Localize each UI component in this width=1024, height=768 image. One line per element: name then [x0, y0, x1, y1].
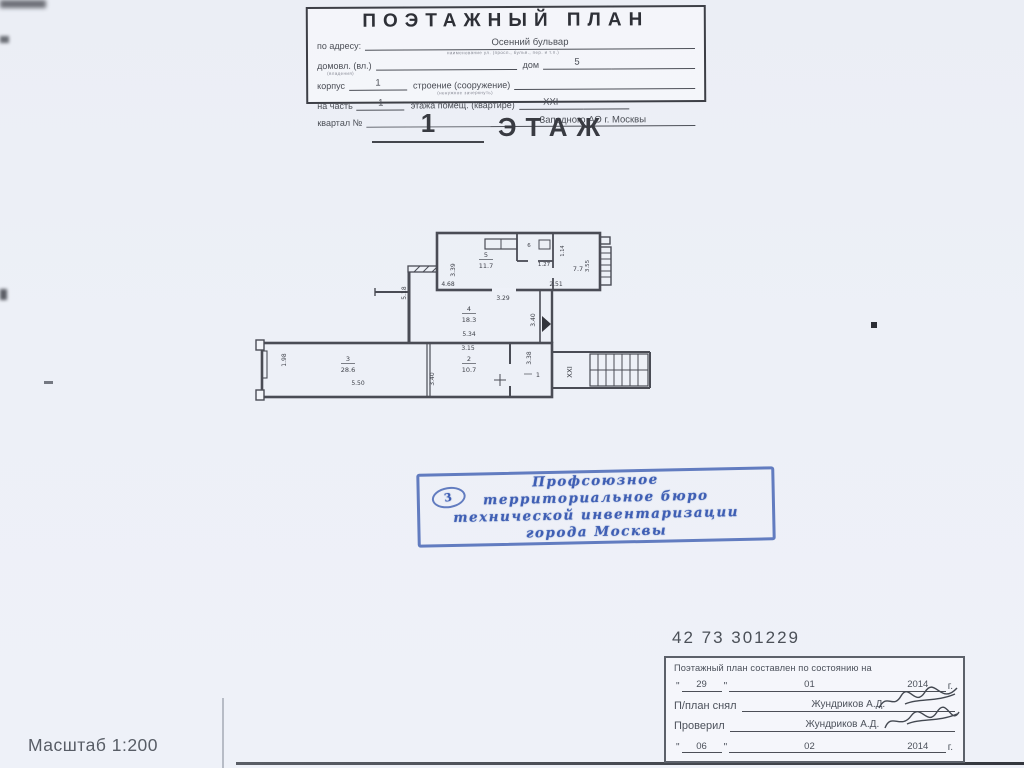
- room3-number-label: 3: [346, 355, 350, 363]
- domovl-label: домовл. (вл.): [317, 61, 372, 70]
- lower-unit-walls: [262, 343, 552, 397]
- year-suffix-1: г.: [948, 682, 953, 692]
- scan-dot-mark: [871, 322, 877, 328]
- left-pilaster-top: [256, 340, 264, 350]
- surveyor-name: Жундриков А.Д.: [742, 700, 955, 712]
- room5-number-label: 5: [484, 251, 488, 259]
- date1-month: 01: [729, 680, 890, 692]
- apartment-xxi-label: XXI: [566, 366, 574, 378]
- scan-mark-left-upper: [0, 36, 9, 43]
- dim-329-label: 3.29: [496, 295, 510, 302]
- dim-518-label: 5.18: [401, 286, 408, 300]
- na-chast-label: на часть: [317, 101, 353, 110]
- room2-number-label: 2: [467, 355, 471, 363]
- part1-number-label: 1: [536, 371, 540, 379]
- checker-label: Проверил: [674, 721, 725, 732]
- domovl-caption: (владения): [327, 70, 695, 76]
- room2-area-label: 10.7: [462, 366, 476, 374]
- dim-340-hall-label: 3.40: [530, 313, 537, 327]
- dim-114-label: 1.14: [560, 245, 566, 256]
- door-triangle-mark: [542, 316, 551, 332]
- footer-checker-row: Проверил Жундриков А.Д.: [674, 720, 955, 732]
- year-suffix-2: г.: [948, 743, 953, 753]
- form-title: ПОЭТАЖНЫЙ ПЛАН: [317, 9, 695, 33]
- dim-340-room2-label: 3.40: [429, 372, 436, 386]
- room4-number-label: 4: [467, 305, 471, 313]
- footer-statement-line: Поэтажный план составлен по состоянию на: [674, 663, 955, 673]
- dim-550-label: 5.50: [351, 380, 365, 387]
- korpus-label: корпус: [317, 81, 345, 90]
- ladder-rungs: [600, 253, 611, 277]
- dim-355-label: 3.55: [585, 259, 591, 272]
- floor-word: ЭТАЖ: [498, 112, 609, 143]
- kvartal-label: квартал №: [317, 119, 362, 128]
- bti-stamp: 3 Профсоюзное территориальное бюро техни…: [416, 466, 775, 547]
- form-row-address: по адресу: Осенний бульвар: [317, 37, 695, 50]
- checker-name: Жундриков А.Д.: [730, 720, 955, 732]
- dom-label: дом: [523, 60, 540, 69]
- form-row-korpus: корпус 1 строение (сооружение): [317, 77, 695, 90]
- date2-day: 06: [682, 742, 722, 754]
- quote-close-1: ": [724, 682, 728, 692]
- footer-date-1: " 29 " 01 2014 г.: [674, 680, 955, 692]
- surveyor-label: П/план снял: [674, 701, 737, 712]
- address-label: по адресу:: [317, 41, 361, 50]
- room5-area-label: 11.7: [479, 262, 493, 270]
- footer-date-2: " 06 " 02 2014 г.: [674, 742, 955, 754]
- room7-area-label: 7.7: [573, 265, 583, 273]
- date1-year: 2014: [890, 680, 946, 692]
- scan-dash-mark: [44, 381, 53, 384]
- title-form-box: ПОЭТАЖНЫЙ ПЛАН по адресу: Осенний бульва…: [306, 5, 707, 104]
- dom-value: 5: [543, 57, 611, 69]
- date2-year: 2014: [890, 742, 946, 754]
- korpus-value: 1: [349, 79, 407, 91]
- dim-468-label: 4.68: [441, 281, 455, 288]
- balcony-notch: [600, 237, 610, 244]
- date1-day: 29: [682, 680, 722, 692]
- stroenie-caption: (ненужное зачеркнуть): [437, 90, 695, 96]
- form-row-domovl: домовл. (вл.) дом 5: [317, 57, 695, 70]
- stamp-line-4: города Москвы: [526, 522, 668, 542]
- room4-area-label: 18.3: [462, 316, 476, 324]
- room3-area-label: 28.6: [341, 366, 355, 374]
- dim-251-label: 2.51: [549, 281, 563, 288]
- scan-mark-left-middle: [0, 289, 7, 300]
- floor-heading: 1 ЭТАЖ: [372, 108, 609, 143]
- footer-surveyor-row: П/план снял Жундриков А.Д.: [674, 700, 955, 712]
- dim-315-label: 3.15: [461, 345, 475, 352]
- floor-plan-drawing: 5 11.7 3.39 4.68 3.29 2.51 6 1.27 1.14 7…: [248, 220, 668, 420]
- floor-plan-svg: 5 11.7 3.39 4.68 3.29 2.51 6 1.27 1.14 7…: [248, 220, 668, 420]
- address-caption: наименование ул. (просп., бульв., пер. и…: [447, 50, 695, 56]
- quote-open-2: ": [676, 743, 680, 753]
- date2-month: 02: [729, 742, 890, 754]
- dim-127-label: 1.27: [538, 262, 551, 268]
- dim-534-label: 5.34: [462, 331, 476, 338]
- scan-vertical-edge-line: [222, 698, 224, 768]
- dim-339-label: 3.39: [450, 263, 457, 277]
- stroenie-label: строение (сооружение): [413, 80, 510, 90]
- address-value: Осенний бульвар: [365, 37, 695, 50]
- stamp-number-oval: 3: [430, 484, 467, 510]
- quote-open-1: ": [676, 682, 680, 692]
- inventory-number: 42 73 301229: [672, 628, 800, 648]
- footer-form-box: Поэтажный план составлен по состоянию на…: [664, 656, 965, 763]
- floor-number: 1: [372, 108, 484, 143]
- scan-smudge-top-left: [0, 0, 46, 8]
- room6-number-label: 6: [527, 243, 531, 249]
- dim-338-label: 3.38: [526, 351, 533, 365]
- dim-198-label: 1.98: [281, 353, 288, 367]
- scale-label: Масштаб 1:200: [28, 735, 158, 756]
- scanned-floor-plan-page: ПОЭТАЖНЫЙ ПЛАН по адресу: Осенний бульва…: [0, 0, 1024, 768]
- quote-close-2: ": [724, 743, 728, 753]
- left-pilaster-bottom: [256, 390, 264, 400]
- room6-fixture: [539, 240, 550, 249]
